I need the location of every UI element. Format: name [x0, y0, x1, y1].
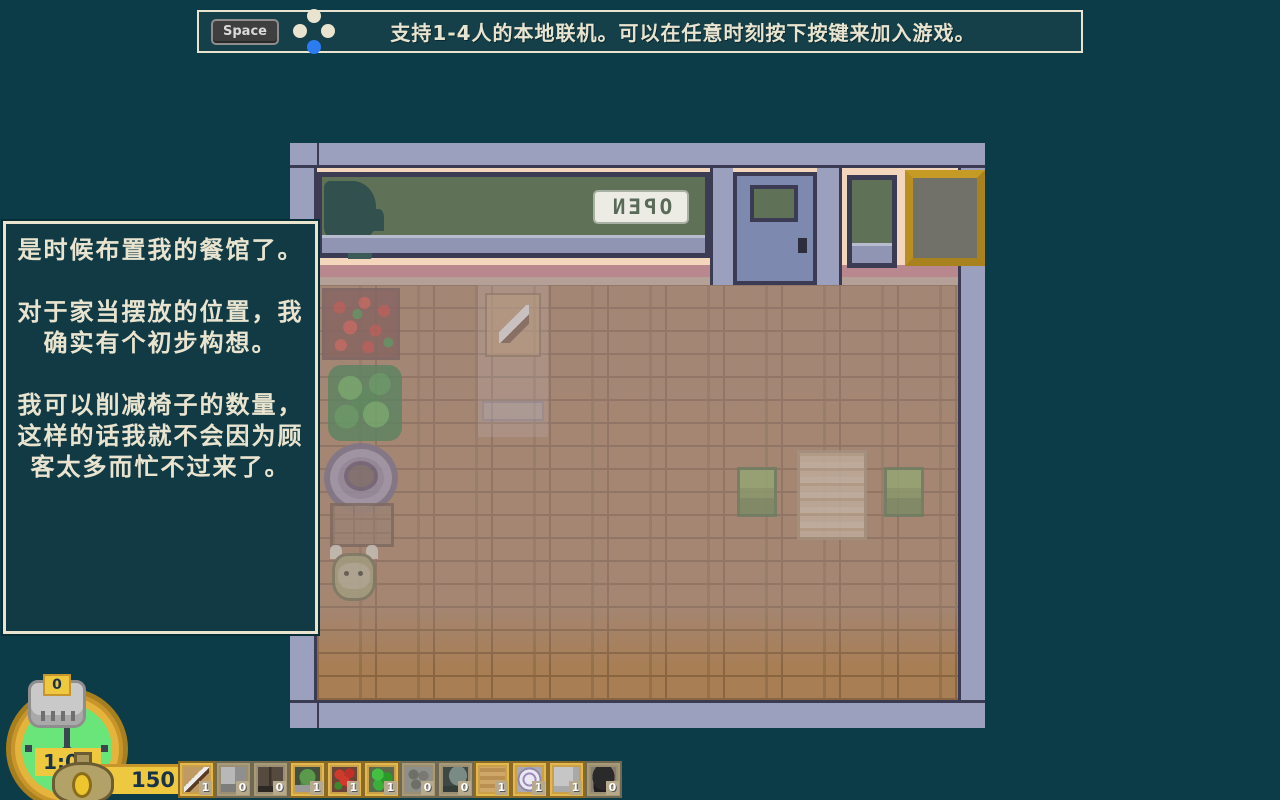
- wall-top: [290, 143, 985, 168]
- hotbar-slot-plate[interactable]: 1: [511, 761, 548, 798]
- side-window: [847, 175, 897, 268]
- cutting-board-ghost: [485, 293, 541, 357]
- coin-icon: [72, 772, 92, 798]
- knife-icon: [499, 305, 529, 343]
- floor-mat-table[interactable]: [797, 450, 867, 540]
- open-sign: OPEN: [593, 190, 689, 224]
- shelf-ghost: [482, 401, 544, 421]
- well-basin: [344, 461, 378, 491]
- green-crate-left[interactable]: [737, 467, 777, 517]
- placement-preview-column[interactable]: [478, 285, 548, 437]
- creature-eye: [358, 571, 363, 576]
- clock-tick: [101, 745, 108, 752]
- furniture-hotbar: 1 0 0 1 1 1 0 0 1 1 1 0: [178, 761, 622, 798]
- green-bush[interactable]: [328, 365, 402, 441]
- window-plant-silhouette: [324, 181, 376, 239]
- storefront-wall: OPEN: [317, 168, 958, 285]
- hotbar-slot-green-bush[interactable]: 1: [363, 761, 400, 798]
- wall-bottom: [290, 700, 985, 728]
- side-window-sill: [852, 243, 892, 263]
- pad-button-left-icon: [293, 24, 307, 38]
- entrance-door[interactable]: [733, 172, 817, 285]
- storefront-window: OPEN: [317, 172, 710, 258]
- door-window: [750, 185, 798, 222]
- pad-button-bottom-icon: [307, 40, 321, 54]
- space-key-badge: Space: [211, 19, 279, 45]
- door-pillar-left: [710, 168, 733, 285]
- menu-chalkboard[interactable]: [905, 170, 985, 266]
- hotbar-slot-gray-counter[interactable]: 0: [215, 761, 252, 798]
- pad-button-top-icon: [307, 9, 321, 23]
- hotbar-slot-cauldron[interactable]: 0: [585, 761, 622, 798]
- hotbar-slot-stone-path[interactable]: 0: [400, 761, 437, 798]
- hotbar-slot-dark-door[interactable]: 0: [252, 761, 289, 798]
- storefront-baseline: [317, 277, 958, 285]
- hotbar-slot-potted-plant[interactable]: 1: [289, 761, 326, 798]
- dialog-paragraph: 对于家当摆放的位置，我确实有个初步构想。: [15, 297, 306, 359]
- hotbar-slot-stove[interactable]: 0: [437, 761, 474, 798]
- hotbar-slot-cutting-board[interactable]: 1: [178, 761, 215, 798]
- dialog-paragraph: 我可以削减椅子的数量，这样的话我就不会因为顾客太多而忙不过来了。: [15, 390, 306, 483]
- customer-count: 0: [43, 674, 71, 696]
- money-bag-icon: [52, 752, 114, 800]
- coop-join-banner: Space 支持1-4人的本地联机。可以在任意时刻按下按键来加入游戏。: [197, 10, 1083, 53]
- pad-button-right-icon: [321, 24, 335, 38]
- door-pillar-right: [817, 168, 842, 285]
- green-crate-right[interactable]: [884, 467, 924, 517]
- creature-eye: [344, 571, 349, 576]
- dialog-paragraph: 是时候布置我的餐馆了。: [15, 235, 306, 266]
- restaurant-scene[interactable]: OPEN: [290, 143, 985, 728]
- hotbar-slot-hay-mat[interactable]: 1: [474, 761, 511, 798]
- clock-tick: [25, 745, 32, 752]
- window-sill: [322, 235, 705, 253]
- hotbar-slot-white-panel[interactable]: 1: [548, 761, 585, 798]
- hotbar-slot-red-flowers[interactable]: 1: [326, 761, 363, 798]
- farm-creature[interactable]: [328, 539, 382, 605]
- dialog-box: 是时候布置我的餐馆了。 对于家当摆放的位置，我确实有个初步构想。 我可以削减椅子…: [3, 221, 318, 634]
- red-flower-bed[interactable]: [322, 288, 400, 360]
- coop-join-message: 支持1-4人的本地联机。可以在任意时刻按下按键来加入游戏。: [337, 17, 1069, 46]
- gamepad-buttons-icon: [291, 9, 337, 55]
- creature-head: [338, 563, 370, 589]
- door-handle-icon: [798, 238, 807, 253]
